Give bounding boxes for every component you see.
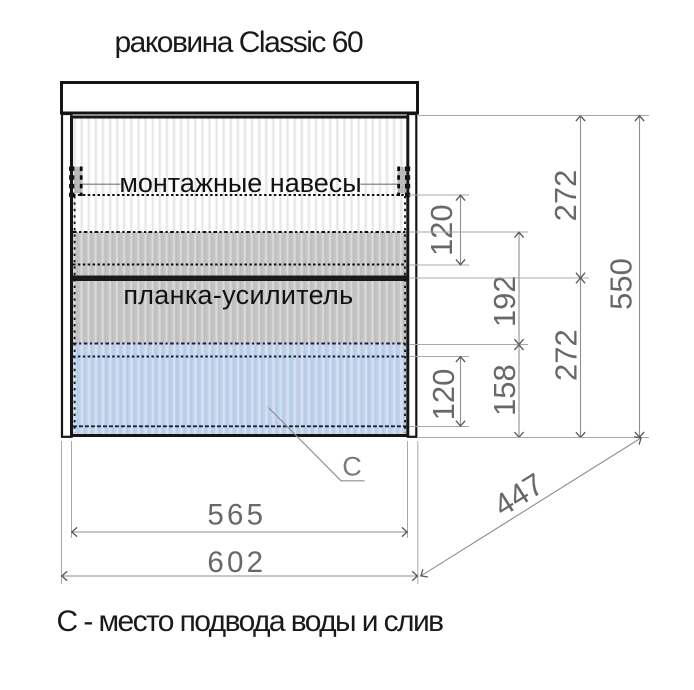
svg-text:раковина Classic 60: раковина Classic 60 (114, 26, 362, 59)
svg-text:120: 120 (426, 369, 461, 421)
svg-text:планка-усилитель: планка-усилитель (123, 280, 353, 310)
svg-text:192: 192 (487, 275, 522, 327)
svg-text:С: С (342, 452, 362, 482)
svg-text:272: 272 (548, 329, 583, 381)
svg-text:602: 602 (207, 546, 266, 579)
svg-text:272: 272 (548, 170, 583, 222)
svg-text:монтажные навесы: монтажные навесы (119, 168, 361, 198)
svg-text:158: 158 (487, 364, 522, 416)
svg-text:С - место подвода воды и слив: С - место подвода воды и слив (57, 605, 444, 638)
svg-text:120: 120 (424, 204, 459, 256)
svg-text:565: 565 (207, 499, 266, 532)
svg-text:550: 550 (604, 258, 639, 310)
